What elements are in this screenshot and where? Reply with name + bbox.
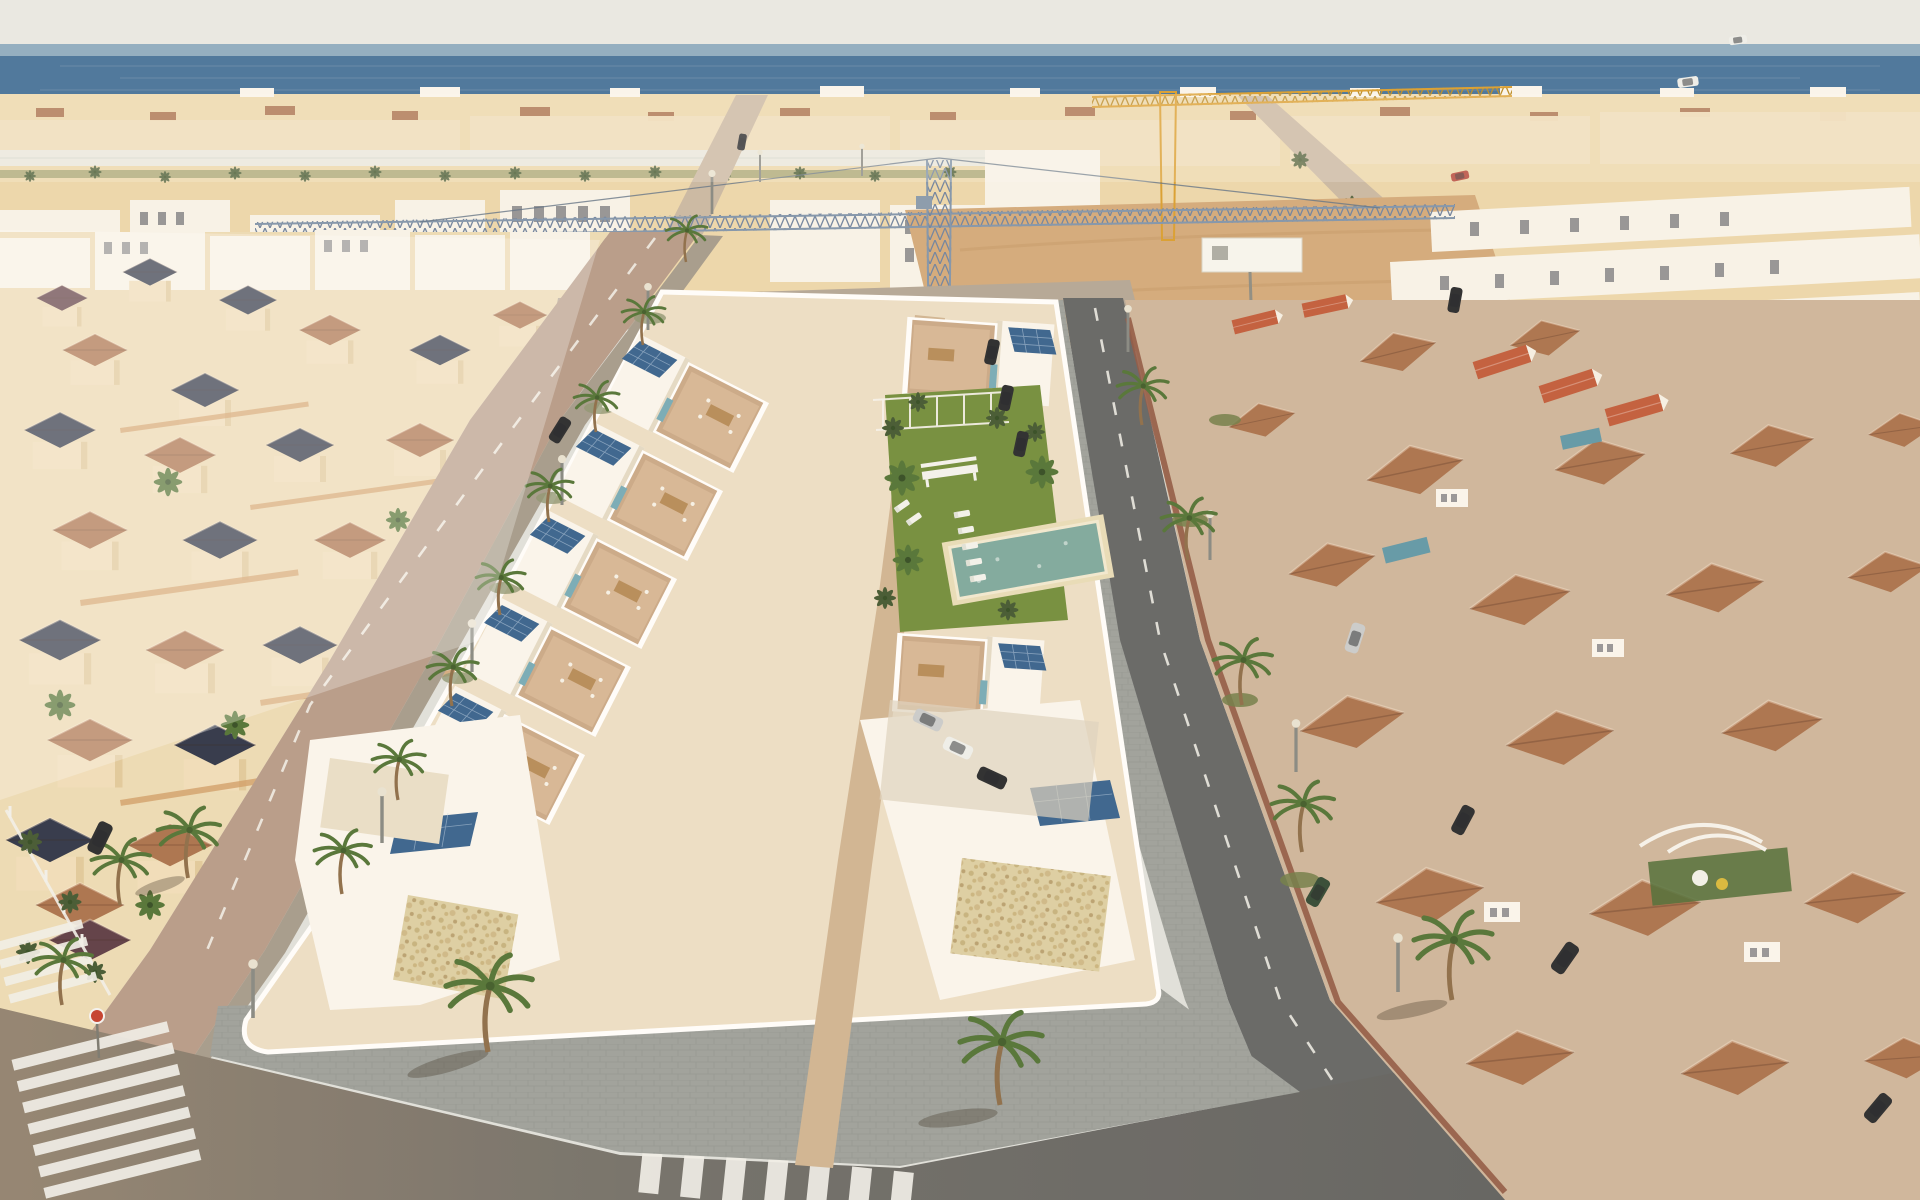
- render-canvas: [0, 0, 1920, 1200]
- aerial-photo: [0, 0, 1920, 1200]
- light-overlays: [0, 0, 1920, 1200]
